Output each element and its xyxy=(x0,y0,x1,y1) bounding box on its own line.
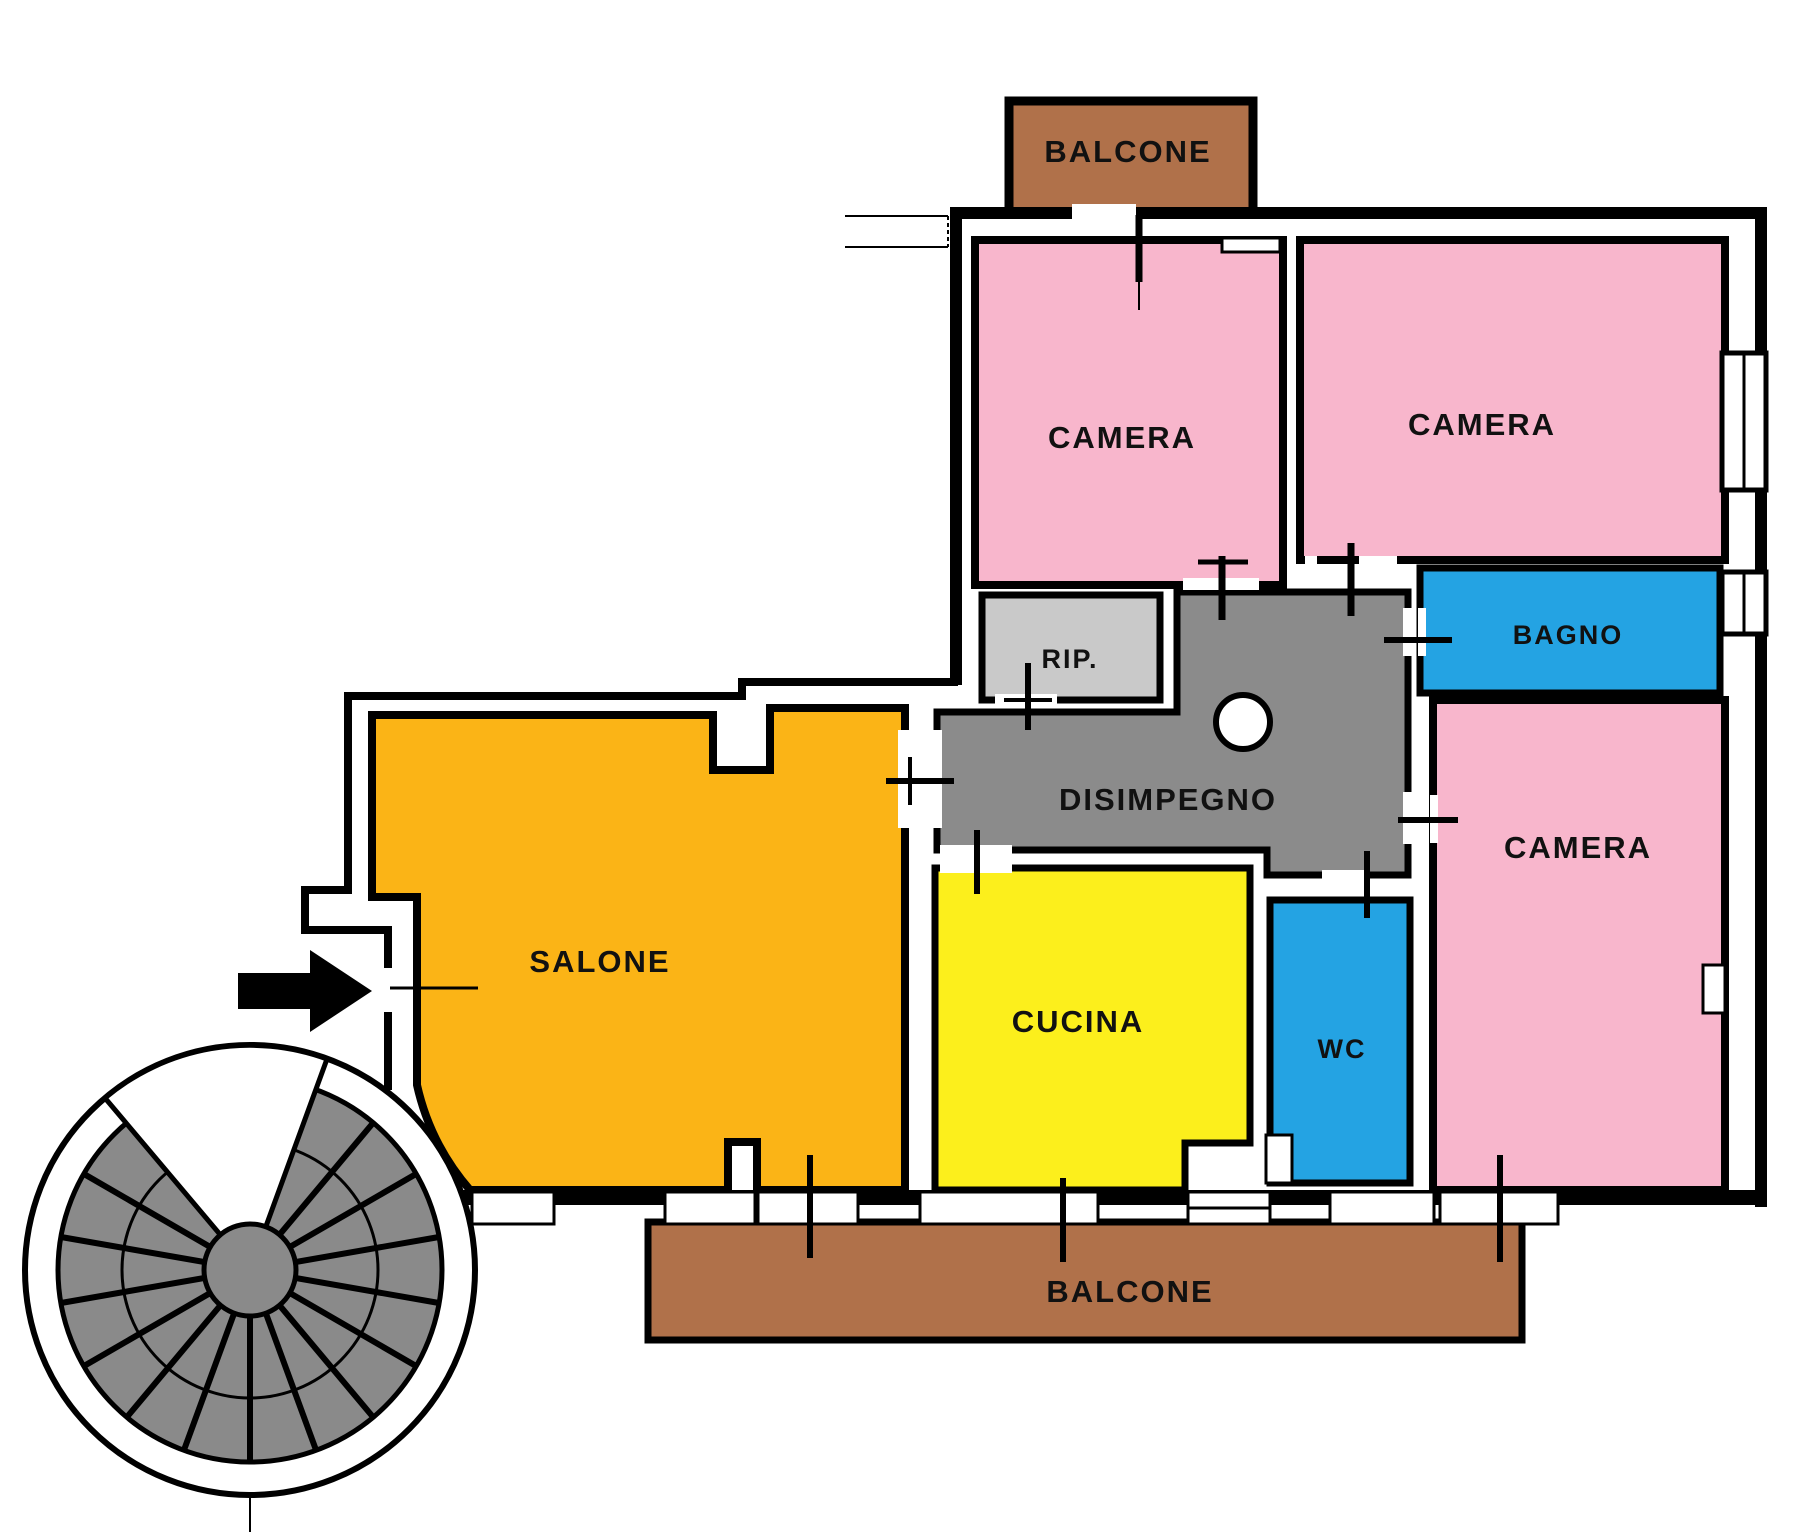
window xyxy=(472,1192,554,1224)
balcony-top: BALCONE xyxy=(1009,101,1253,213)
room-camera-nw-label: CAMERA xyxy=(1048,420,1196,455)
door-opening xyxy=(1072,204,1136,222)
dimension-lines xyxy=(845,216,948,247)
room-camera-nw: CAMERA xyxy=(975,238,1283,585)
balcony-top-label: BALCONE xyxy=(1044,134,1211,169)
room-camera-ne-label: CAMERA xyxy=(1408,407,1556,442)
room-camera-ne: CAMERA xyxy=(1300,240,1725,560)
door-opening xyxy=(1403,608,1415,656)
room-rip: RIP. xyxy=(982,595,1160,700)
door-opening xyxy=(1418,608,1426,656)
wc-notch xyxy=(1266,1135,1292,1183)
window xyxy=(665,1192,755,1224)
window xyxy=(920,1192,1098,1224)
flue-notch xyxy=(1222,238,1280,252)
spiral-staircase xyxy=(25,1045,475,1532)
room-rip-label: RIP. xyxy=(1041,644,1098,674)
room-wc-label: WC xyxy=(1318,1034,1367,1064)
room-wc: WC xyxy=(1266,900,1410,1183)
door-opening xyxy=(1359,556,1397,566)
room-bagno-label: BAGNO xyxy=(1513,620,1624,650)
floor-plan: BALCONE xyxy=(0,0,1813,1536)
door-opening xyxy=(1305,556,1317,566)
balcony-bottom-label: BALCONE xyxy=(1046,1274,1213,1309)
window xyxy=(1330,1192,1434,1224)
room-disimpegno-label: DISIMPEGNO xyxy=(1059,782,1277,817)
door-opening xyxy=(1322,870,1364,880)
camera-se-notch xyxy=(1703,965,1725,1013)
balcony-bottom: BALCONE xyxy=(648,1222,1522,1340)
room-camera-se: CAMERA xyxy=(1433,700,1725,1190)
room-salone-label: SALONE xyxy=(529,944,670,979)
stair-hub xyxy=(204,1224,296,1316)
entrance-arrow xyxy=(238,950,372,1032)
room-cucina: CUCINA xyxy=(935,868,1250,1190)
room-camera-se-label: CAMERA xyxy=(1504,830,1652,865)
column-circle xyxy=(1216,695,1270,749)
room-salone: SALONE xyxy=(372,708,905,1190)
room-bagno: BAGNO xyxy=(1420,568,1720,693)
room-cucina-label: CUCINA xyxy=(1012,1004,1145,1039)
